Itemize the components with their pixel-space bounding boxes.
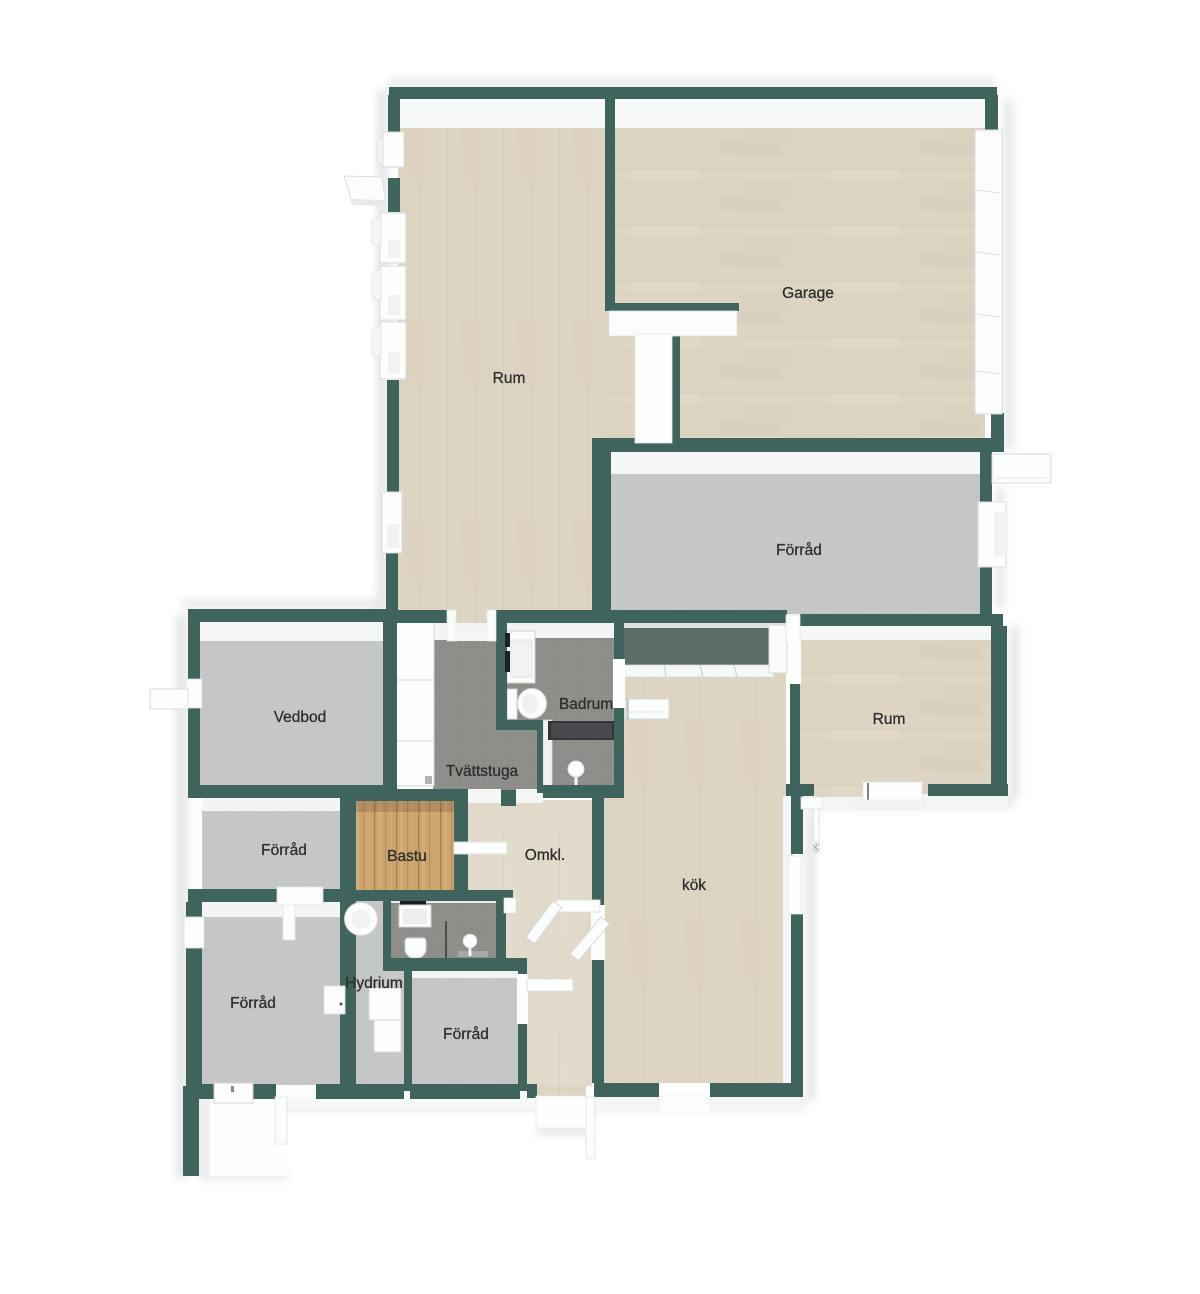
svg-text:Förråd: Förråd xyxy=(230,995,276,1012)
svg-text:Bastu: Bastu xyxy=(387,848,427,865)
svg-text:kök: kök xyxy=(682,877,706,894)
svg-text:Vedbod: Vedbod xyxy=(274,709,327,726)
svg-text:Badrum: Badrum xyxy=(559,696,613,713)
svg-text:Förråd: Förråd xyxy=(443,1026,489,1043)
svg-text:Garage: Garage xyxy=(782,285,834,302)
svg-text:Tvättstuga: Tvättstuga xyxy=(446,763,519,780)
svg-text:Förråd: Förråd xyxy=(261,842,307,859)
svg-text:Hydrium: Hydrium xyxy=(345,975,403,992)
svg-text:Rum: Rum xyxy=(873,711,906,728)
svg-text:Rum: Rum xyxy=(493,370,526,387)
svg-text:Förråd: Förråd xyxy=(776,542,822,559)
svg-text:Omkl.: Omkl. xyxy=(525,847,565,864)
